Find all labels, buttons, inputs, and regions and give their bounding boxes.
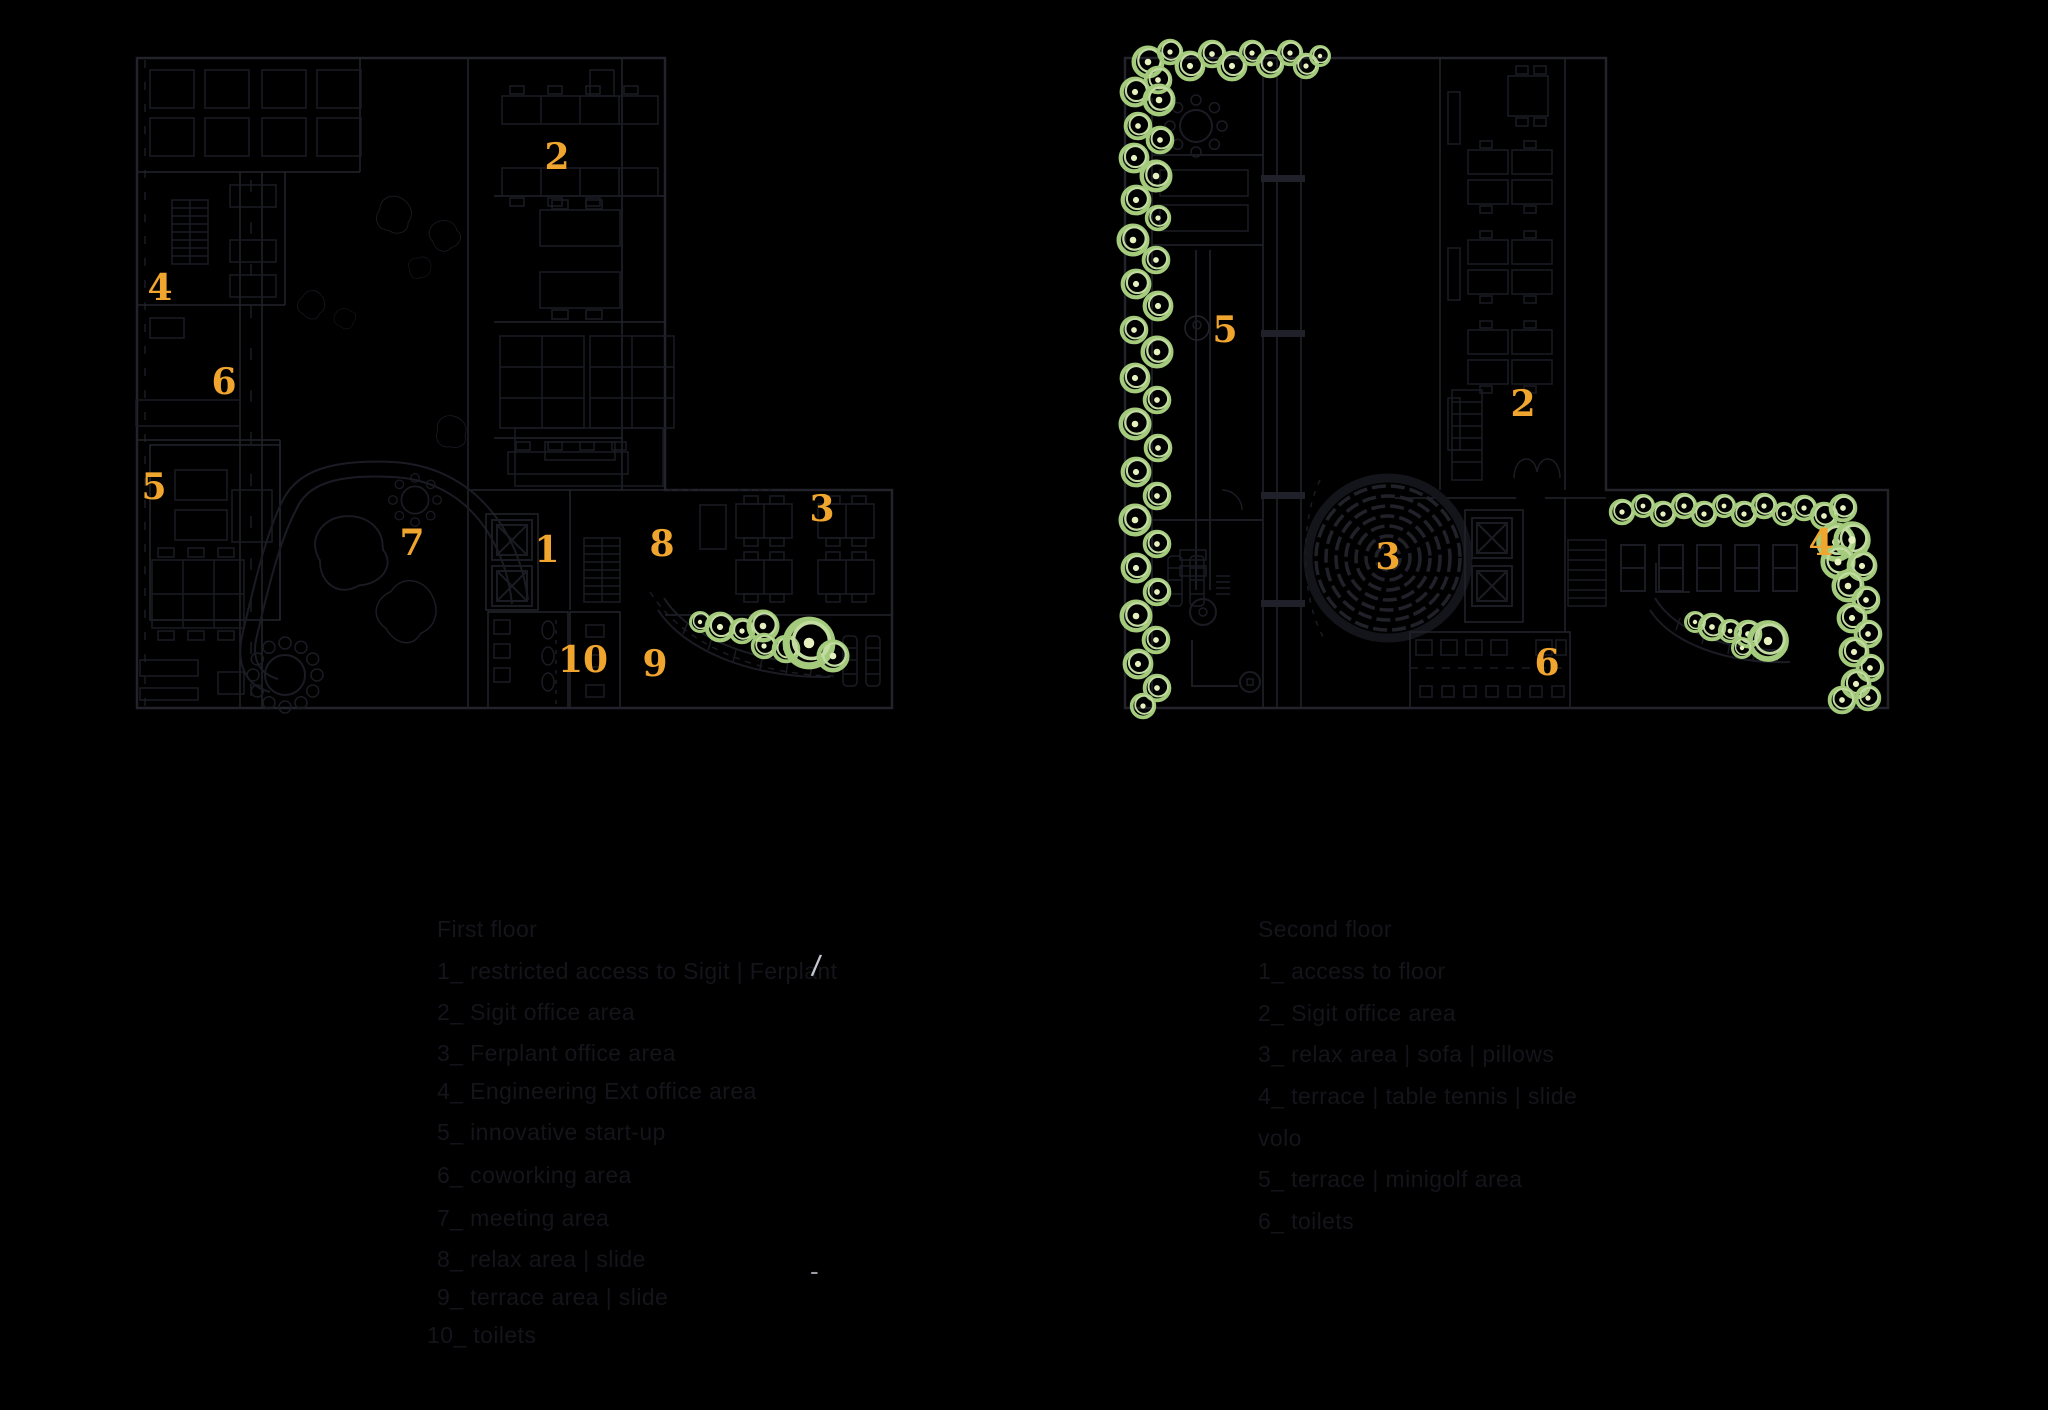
area-label-f1-2: 2: [544, 139, 569, 175]
area-label-f1-7: 7: [399, 525, 424, 561]
legend-item: 4_ terrace | table tennis | slide: [1258, 1083, 1577, 1110]
meeting-area: [240, 415, 528, 692]
area-label-f1-8: 8: [649, 526, 674, 562]
area-label-f1-5: 5: [141, 469, 166, 505]
legend-item: 3_ Ferplant office area: [437, 1040, 676, 1067]
area-label-f2-6: 6: [1534, 645, 1559, 681]
area-label-f1-6: 6: [211, 364, 236, 400]
floor-plans-drawing: [0, 0, 2048, 1410]
legend-item: 3_ relax area | sofa | pillows: [1258, 1041, 1554, 1068]
legend-item: 10_ toilets: [427, 1322, 536, 1349]
area-label-f2-4: 4: [1808, 525, 1833, 561]
area-label-f2-2: 2: [1510, 386, 1535, 422]
area-label-f1-4: 4: [147, 270, 172, 306]
cursor-dash-mark: -: [810, 1258, 819, 1284]
floor-plan-sheet: 2 4 6 5 7 1 8 3 10 9 5 2 3 4 6 First flo…: [0, 0, 2048, 1410]
area-label-f1-10: 10: [558, 642, 608, 678]
second-floor-legend-title: Second floor: [1258, 916, 1392, 943]
legend-item: 2_ Sigit office area: [437, 999, 635, 1026]
core-elevators-stairs: [486, 428, 663, 610]
legend-item: 8_ relax area | slide: [437, 1246, 646, 1273]
legend-item: 1_ access to floor: [1258, 958, 1445, 985]
legend-item: 9_ terrace area | slide: [437, 1284, 668, 1311]
first-floor-plan: [136, 58, 892, 713]
area-label-f2-5: 5: [1212, 312, 1237, 348]
legend-item: 6_ toilets: [1258, 1208, 1354, 1235]
legend-item: volo: [1258, 1125, 1302, 1152]
legend-item: 6_ coworking area: [437, 1162, 632, 1189]
core-second-floor: [1465, 510, 1606, 622]
legend-item: 2_ Sigit office area: [1258, 1000, 1456, 1027]
area-label-f1-3: 3: [809, 491, 834, 527]
terrace-table-tennis: [1621, 545, 1797, 663]
area-label-f1-9: 9: [642, 646, 667, 682]
legend-item: 5_ innovative start-up: [437, 1119, 666, 1146]
trees-left-column: [1119, 79, 1174, 718]
legend-item: 5_ terrace | minigolf area: [1258, 1166, 1522, 1193]
area-label-f1-1: 1: [534, 532, 559, 568]
legend-item: 4_ Engineering Ext office area: [437, 1078, 757, 1105]
desk-pods: [150, 70, 361, 156]
legend-item: 7_ meeting area: [437, 1205, 609, 1232]
trees-terrace-first-floor: [691, 612, 848, 671]
second-floor-plan: [1119, 41, 1888, 718]
sigit-office-second-floor: [1448, 66, 1560, 480]
area-label-f2-3: 3: [1375, 539, 1400, 575]
legend-item: 1_ restricted access to Sigit | Ferplant: [437, 958, 837, 985]
round-table-12: [247, 637, 323, 713]
sigit-office-first-floor: [500, 70, 674, 474]
first-floor-legend-title: First floor: [437, 916, 537, 943]
conference-tables: [152, 548, 244, 640]
